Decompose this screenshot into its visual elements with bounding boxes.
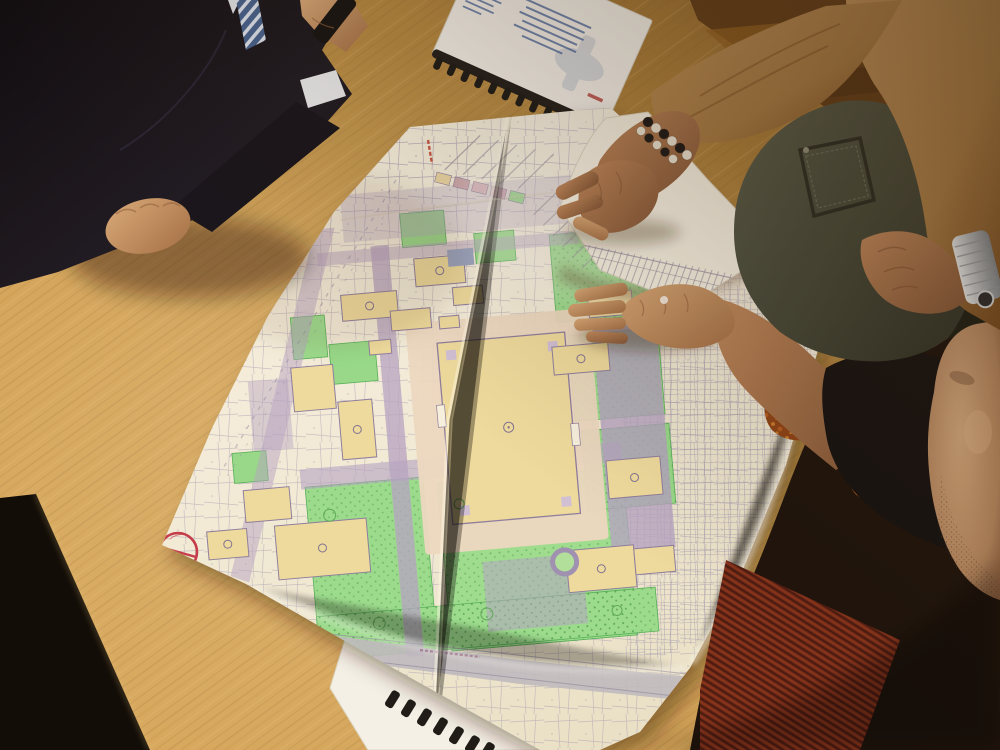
scene-canvas bbox=[0, 0, 1000, 750]
photo-scene bbox=[0, 0, 1000, 750]
warm-tint bbox=[0, 0, 1000, 750]
